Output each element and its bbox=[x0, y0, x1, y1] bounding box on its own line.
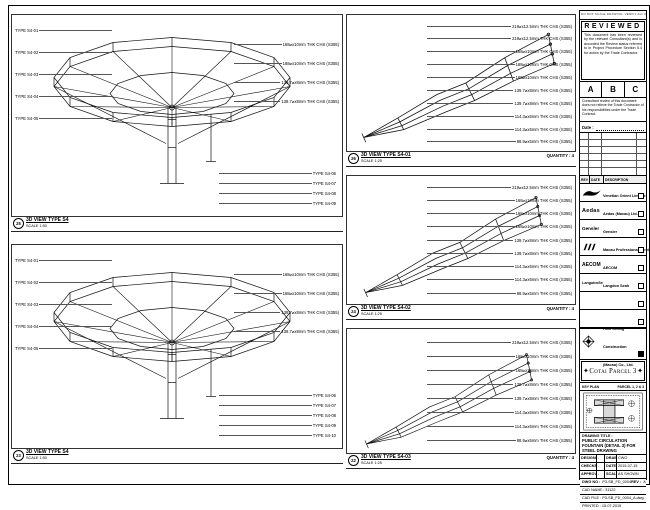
section-label-row: 168⌀x10mm THK CHS (S355) bbox=[233, 60, 339, 66]
annotation-label: 168⌀x10mm THK CHS (S355) bbox=[516, 62, 572, 67]
section-label: 168⌀x10mm THK CHS (S355) bbox=[283, 42, 339, 47]
leader-line bbox=[427, 141, 516, 142]
member-label: TYPE S4-05 bbox=[15, 116, 38, 121]
member-label-row: TYPE S4-03 bbox=[15, 301, 113, 307]
annotation-row: 168⌀x10mm THK CHS (S355) bbox=[426, 62, 572, 68]
section-label-row: 168⌀x10mm THK CHS (S355) bbox=[233, 271, 339, 277]
reviewed-stamp-body: This document has been reviewed by the r… bbox=[582, 32, 644, 56]
consultant-list: Venetian Orient Limited Aedas Aedas (Mac… bbox=[580, 184, 646, 329]
annotation-row: 219⌀x12.5mm THK CHS (S355) bbox=[426, 184, 572, 190]
annotation-label: 114.3⌀x6mm THK CHS (S355) bbox=[515, 114, 572, 119]
keyplan-header: KEY PLAN PARCEL 1, 2 & 3 bbox=[580, 383, 646, 391]
leader-line bbox=[219, 203, 312, 204]
annotation-row: 114.3⌀x6mm THK CHS (S355) bbox=[426, 264, 572, 270]
view-scale: SCALE 1:25 bbox=[361, 159, 411, 163]
cad-name: CAD NAME : 31122 bbox=[582, 487, 615, 494]
annotation-row: 114.3⌀x6mm THK CHS (S355) bbox=[426, 126, 572, 132]
member-label-row: TYPE S4-04 bbox=[15, 323, 113, 329]
annotation-label: 168⌀x10mm THK CHS (S355) bbox=[516, 49, 572, 54]
annotation-label: 219⌀x12.5mm THK CHS (S355) bbox=[512, 24, 572, 29]
member-label: TYPE S4-10 bbox=[313, 433, 336, 438]
section-label: 139.7⌀x8mm THK CHS (S355) bbox=[281, 329, 339, 334]
viewport: TYPE S4-01TYPE S4-02TYPE S4-03TYPE S4-04… bbox=[11, 244, 343, 449]
member-label-row: TYPE S4-09 bbox=[218, 200, 336, 206]
view-caption: 26 3D VIEW TYPE S4-01 SCALE 1:25 QUANTIT… bbox=[346, 152, 576, 167]
section-label-row: 139.7⌀x8mm THK CHS (S355) bbox=[233, 328, 339, 334]
member-label: TYPE S4-03 bbox=[15, 72, 38, 77]
leader-line bbox=[427, 200, 515, 201]
leader-line bbox=[427, 64, 515, 65]
review-grade-b: B bbox=[602, 82, 624, 97]
annotation-row: 219⌀x12.5mm THK CHS (S355) bbox=[426, 23, 572, 29]
keyplan-drawing bbox=[581, 392, 645, 431]
annotation-label: 139.7⌀x8mm THK CHS (S355) bbox=[514, 88, 572, 93]
member-label-row: TYPE S4-10 bbox=[218, 432, 336, 438]
annotation-label: 219⌀x12.5mm THK CHS (S355) bbox=[512, 36, 572, 41]
cad-name-row: CAD NAME : 31122 bbox=[580, 487, 646, 495]
consultant-row-gensler: Gensler Gensler bbox=[580, 220, 646, 238]
consultant-row-empty-1 bbox=[580, 292, 646, 310]
leader-line bbox=[427, 26, 511, 27]
member-label-row: TYPE S4-06 bbox=[218, 170, 336, 176]
leader-line bbox=[39, 30, 112, 31]
leader-line bbox=[39, 348, 112, 349]
annotation-label: 139.7⌀x8mm THK CHS (S355) bbox=[514, 101, 572, 106]
consultant-row-aecom: AECOM AECOM bbox=[580, 256, 646, 274]
section-labels-right: 168⌀x10mm THK CHS (S355)168⌀x10mm THK CH… bbox=[233, 41, 339, 117]
member-label-row: TYPE S4-01 bbox=[15, 27, 113, 33]
member-label-row: TYPE S4-07 bbox=[218, 180, 336, 186]
leader-line bbox=[427, 226, 515, 227]
viewport: TYPE S4-01TYPE S4-02TYPE S4-03TYPE S4-04… bbox=[11, 14, 343, 217]
dwg-no-row: DWG NO : P3-SB_FD_0004 REV : A bbox=[580, 479, 646, 487]
annotation-row: 139.7⌀x8mm THK CHS (S355) bbox=[426, 381, 572, 387]
leader-line bbox=[219, 395, 312, 396]
cad-file-row: CAD FILE : P3-SB_FD_0004_A.dwg bbox=[580, 495, 646, 503]
view-caption: 25 3D VIEW TYPE S4 SCALE 1:50 bbox=[11, 217, 343, 232]
viewport: 219⌀x12.5mm THK CHS (S355)168⌀x10mm THK … bbox=[346, 328, 576, 454]
annotation-stack: 219⌀x12.5mm THK CHS (S355)168⌀x10mm THK … bbox=[426, 184, 572, 296]
leader-line bbox=[39, 74, 112, 75]
leader-line bbox=[427, 342, 511, 343]
member-label: TYPE S4-01 bbox=[15, 28, 38, 33]
member-label-row: TYPE S4-02 bbox=[15, 49, 113, 55]
view-panel-s4-01: 219⌀x12.5mm THK CHS (S355)219⌀x12.5mm TH… bbox=[346, 14, 576, 167]
annotation-row: 88.9⌀x5mm THK CHS (S355) bbox=[426, 437, 572, 443]
section-label: 168⌀x10mm THK CHS (S355) bbox=[283, 61, 339, 66]
member-label-row: TYPE S4-01 bbox=[15, 257, 113, 263]
leader-line bbox=[234, 63, 282, 64]
annotation-label: 168⌀x10mm THK CHS (S355) bbox=[516, 198, 572, 203]
annotation-row: 168⌀x10mm THK CHS (S355) bbox=[426, 211, 572, 217]
rev-label: REV : bbox=[631, 480, 641, 484]
annotation-row: 219⌀x12.5mm THK CHS (S355) bbox=[426, 339, 572, 345]
leader-line bbox=[427, 370, 515, 371]
leader-line bbox=[39, 282, 112, 283]
review-checkbox bbox=[638, 247, 644, 253]
view-caption: 23 3D VIEW TYPE S4 SCALE 1:50 bbox=[11, 449, 343, 464]
leader-line bbox=[39, 118, 112, 119]
review-grade-row: A B C bbox=[580, 82, 646, 98]
annotation-label: 168⌀x10mm THK CHS (S355) bbox=[516, 224, 572, 229]
field-label: DATE bbox=[605, 463, 617, 470]
section-label: 139.7⌀x8mm THK CHS (S355) bbox=[281, 99, 339, 104]
section-label-row: 139.7⌀x8mm THK CHS (S355) bbox=[233, 98, 339, 104]
annotation-label: 88.9⌀x5mm THK CHS (S355) bbox=[517, 139, 572, 144]
field-label: SCALE bbox=[605, 471, 617, 478]
consultant-row-aedas: Aedas Aedas (Macau) Ltd. bbox=[580, 202, 646, 220]
annotation-label: 139.7⌀x8mm THK CHS (S355) bbox=[514, 238, 572, 243]
keyplan-label: KEY PLAN bbox=[582, 385, 599, 389]
leader-line bbox=[427, 412, 514, 413]
quantity-note: QUANTITY : 4 bbox=[547, 455, 574, 460]
date-col-header: DATE bbox=[590, 176, 604, 183]
annotation-row: 114.3⌀x6mm THK CHS (S355) bbox=[426, 409, 572, 415]
annotation-label: 88.9⌀x5mm THK CHS (S355) bbox=[517, 438, 572, 443]
leader-line bbox=[39, 304, 112, 305]
detail-ref-bubble: 24 bbox=[348, 306, 359, 317]
field-value: 2015-07-15 bbox=[617, 463, 646, 470]
middle-view-column: 219⌀x12.5mm THK CHS (S355)219⌀x12.5mm TH… bbox=[346, 14, 576, 481]
drawing-title: PUBLIC CIRCULATION FOUNTAIN (DETAIL 3) F… bbox=[580, 438, 646, 455]
member-label-row: TYPE S4-08 bbox=[218, 190, 336, 196]
annotation-row: 114.3⌀x6mm THK CHS (S355) bbox=[426, 277, 572, 283]
section-label-row: 168⌀x10mm THK CHS (S355) bbox=[233, 290, 339, 296]
review-checkbox bbox=[638, 301, 644, 307]
quantity-note: QUANTITY : 4 bbox=[547, 306, 574, 311]
field-label: APPROVED bbox=[580, 471, 597, 478]
review-checkbox bbox=[638, 211, 644, 217]
leader-line bbox=[427, 398, 513, 399]
member-label-row: TYPE S4-02 bbox=[15, 279, 113, 285]
sheet-note: DO NOT SCALE DRAWING. VERIFY ALL DIMENSI… bbox=[580, 11, 646, 20]
field-label: DESIGNED bbox=[580, 455, 597, 462]
printed-on: PRINTED : 15-07-2015 bbox=[582, 503, 621, 510]
annotation-label: 219⌀x12.5mm THK CHS (S355) bbox=[512, 185, 572, 190]
member-label: TYPE S4-05 bbox=[15, 346, 38, 351]
section-label: 168⌀x10mm THK CHS (S355) bbox=[283, 272, 339, 277]
leader-line bbox=[219, 405, 312, 406]
view-scale: SCALE 1:25 bbox=[361, 312, 411, 316]
leader-line bbox=[234, 82, 280, 83]
meinhardt-logo bbox=[582, 238, 603, 256]
leader-line bbox=[427, 51, 515, 52]
stamp-date-row: Date : bbox=[580, 122, 646, 133]
description-col-header: DESCRIPTION bbox=[604, 176, 646, 183]
member-label: TYPE S4-07 bbox=[313, 403, 336, 408]
member-label: TYPE S4-08 bbox=[313, 191, 336, 196]
contractor-name: Hsin Chong Construction (Macau) Co., Ltd… bbox=[603, 327, 634, 367]
leader-line bbox=[427, 116, 514, 117]
annotation-label: 88.9⌀x5mm THK CHS (S355) bbox=[517, 291, 572, 296]
aecom-logo: AECOM bbox=[582, 262, 603, 268]
drawing-sheet: TYPE S4-01TYPE S4-02TYPE S4-03TYPE S4-04… bbox=[8, 5, 650, 485]
view-panel-s4-02: 219⌀x12.5mm THK CHS (S355)168⌀x10mm THK … bbox=[346, 175, 576, 320]
annotation-row: 139.7⌀x8mm THK CHS (S355) bbox=[426, 87, 572, 93]
dwg-no-label: DWG NO : bbox=[582, 479, 600, 486]
leader-line bbox=[219, 435, 312, 436]
annotation-row: 139.7⌀x8mm THK CHS (S355) bbox=[426, 395, 572, 401]
title-block-column: DO NOT SCALE DRAWING. VERIFY ALL DIMENSI… bbox=[579, 10, 647, 480]
annotation-row: 168⌀x10mm THK CHS (S355) bbox=[426, 353, 572, 359]
annotation-row: 168⌀x10mm THK CHS (S355) bbox=[426, 75, 572, 81]
annotation-row: 168⌀x10mm THK CHS (S355) bbox=[426, 367, 572, 373]
consultant-name: AECOM bbox=[603, 266, 617, 270]
gensler-logo: Gensler bbox=[582, 226, 603, 231]
viewport: 219⌀x12.5mm THK CHS (S355)219⌀x12.5mm TH… bbox=[346, 14, 576, 152]
leader-line bbox=[427, 253, 513, 254]
annotation-label: 168⌀x10mm THK CHS (S355) bbox=[516, 211, 572, 216]
member-label-row: TYPE S4-09 bbox=[218, 422, 336, 428]
member-label-row: TYPE S4-06 bbox=[218, 392, 336, 398]
signoff-grid: DESIGNED - DRAWN CWO CHECKED - DATE 2015… bbox=[580, 455, 646, 479]
leader-line bbox=[219, 193, 312, 194]
leader-line bbox=[219, 415, 312, 416]
left-view-column: TYPE S4-01TYPE S4-02TYPE S4-03TYPE S4-04… bbox=[11, 14, 343, 476]
view-caption: 22 3D VIEW TYPE S4-03 SCALE 1:25 QUANTIT… bbox=[346, 454, 576, 469]
annotation-row: 168⌀x10mm THK CHS (S355) bbox=[426, 224, 572, 230]
field-value: CWO bbox=[617, 455, 646, 462]
annotation-label: 114.3⌀x6mm THK CHS (S355) bbox=[515, 410, 572, 415]
leader-line bbox=[219, 183, 312, 184]
review-grade-c: C bbox=[625, 82, 646, 97]
annotation-label: 114.3⌀x6mm THK CHS (S355) bbox=[515, 264, 572, 269]
quantity-note: QUANTITY : 4 bbox=[547, 153, 574, 158]
review-checkbox bbox=[638, 229, 644, 235]
annotation-label: 139.7⌀x8mm THK CHS (S355) bbox=[514, 396, 572, 401]
leader-line bbox=[427, 384, 513, 385]
stamp-disclaimer: Consultant review of this document does … bbox=[580, 98, 646, 122]
annotation-row: 88.9⌀x5mm THK CHS (S355) bbox=[426, 290, 572, 296]
member-label: TYPE S4-04 bbox=[15, 324, 38, 329]
section-label: 139.7⌀x8mm THK CHS (S355) bbox=[281, 80, 339, 85]
rev-value: A bbox=[643, 479, 646, 486]
consultant-name: Gensler bbox=[603, 230, 617, 234]
section-labels-right: 168⌀x10mm THK CHS (S355)168⌀x10mm THK CH… bbox=[233, 271, 339, 347]
review-checkbox bbox=[638, 283, 644, 289]
member-label: TYPE S4-02 bbox=[15, 50, 38, 55]
member-label: TYPE S4-08 bbox=[313, 413, 336, 418]
leader-line bbox=[234, 274, 282, 275]
aedas-logo: Aedas bbox=[582, 208, 603, 214]
contractor-row: Hsin Chong Construction (Macau) Co., Ltd… bbox=[580, 329, 646, 360]
venetian-sands-logo bbox=[582, 184, 603, 202]
leader-line bbox=[427, 426, 514, 427]
cad-file: CAD FILE : P3-SB_FD_0004_A.dwg bbox=[582, 495, 644, 502]
member-label: TYPE S4-03 bbox=[15, 302, 38, 307]
leader-line bbox=[234, 101, 280, 102]
reviewed-stamp-title: REVIEWED bbox=[582, 22, 644, 32]
member-label-row: TYPE S4-07 bbox=[218, 402, 336, 408]
member-label: TYPE S4-01 bbox=[15, 258, 38, 263]
consultant-name: Langdon Seah bbox=[603, 284, 629, 288]
member-label: TYPE S4-09 bbox=[313, 201, 336, 206]
leader-line bbox=[427, 187, 511, 188]
annotation-label: 168⌀x10mm THK CHS (S355) bbox=[516, 368, 572, 373]
date-label: Date : bbox=[582, 125, 594, 130]
leader-line bbox=[427, 266, 514, 267]
leader-line bbox=[427, 38, 511, 39]
member-type-labels-bottom: TYPE S4-06TYPE S4-07TYPE S4-08TYPE S4-09… bbox=[218, 392, 336, 442]
keyplan-parcel-label: PARCEL 1, 2 & 3 bbox=[618, 385, 644, 389]
section-label-row: 168⌀x10mm THK CHS (S355) bbox=[233, 41, 339, 47]
view-panel-s4-top: TYPE S4-01TYPE S4-02TYPE S4-03TYPE S4-04… bbox=[11, 14, 343, 232]
annotation-row: 139.7⌀x8mm THK CHS (S355) bbox=[426, 250, 572, 256]
member-label: TYPE S4-09 bbox=[313, 423, 336, 428]
section-label: 139.7⌀x8mm THK CHS (S355) bbox=[281, 310, 339, 315]
leader-line bbox=[39, 52, 112, 53]
leader-line bbox=[427, 213, 515, 214]
member-type-labels-left: TYPE S4-01TYPE S4-02TYPE S4-03TYPE S4-04… bbox=[15, 27, 113, 137]
annotation-row: 168⌀x10mm THK CHS (S355) bbox=[426, 197, 572, 203]
leader-line bbox=[427, 293, 516, 294]
member-label-row: TYPE S4-03 bbox=[15, 71, 113, 77]
consultant-row-meinhardt: Macau Professional Services Ltd. bbox=[580, 238, 646, 256]
annotation-label: 114.3⌀x6mm THK CHS (S355) bbox=[515, 127, 572, 132]
annotation-row: 139.7⌀x8mm THK CHS (S355) bbox=[426, 237, 572, 243]
revision-table bbox=[580, 133, 646, 176]
annotation-row: 168⌀x10mm THK CHS (S355) bbox=[426, 49, 572, 55]
leader-line bbox=[234, 293, 282, 294]
date-fill-line bbox=[596, 124, 644, 131]
member-label: TYPE S4-04 bbox=[15, 94, 38, 99]
leader-line bbox=[219, 425, 312, 426]
annotation-label: 168⌀x10mm THK CHS (S355) bbox=[516, 354, 572, 359]
printed-row: PRINTED : 15-07-2015 bbox=[580, 503, 646, 510]
leader-line bbox=[427, 77, 515, 78]
view-panel-s4-03: 219⌀x12.5mm THK CHS (S355)168⌀x10mm THK … bbox=[346, 328, 576, 469]
annotation-row: 139.7⌀x8mm THK CHS (S355) bbox=[426, 100, 572, 106]
member-type-labels-bottom: TYPE S4-06TYPE S4-07TYPE S4-08TYPE S4-09 bbox=[218, 170, 336, 210]
annotation-stack: 219⌀x12.5mm THK CHS (S355)219⌀x12.5mm TH… bbox=[426, 23, 572, 145]
annotation-label: 114.3⌀x6mm THK CHS (S355) bbox=[515, 277, 572, 282]
leader-line bbox=[427, 103, 513, 104]
contractor-checkbox bbox=[638, 351, 644, 357]
annotation-label: 168⌀x10mm THK CHS (S355) bbox=[516, 75, 572, 80]
annotation-row: 114.3⌀x6mm THK CHS (S355) bbox=[426, 113, 572, 119]
member-label-row: TYPE S4-04 bbox=[15, 93, 113, 99]
leader-line bbox=[234, 312, 280, 313]
leader-line bbox=[427, 440, 516, 441]
detail-ref-bubble: 22 bbox=[348, 455, 359, 466]
field-value: - bbox=[597, 471, 605, 478]
field-value: - bbox=[597, 455, 605, 462]
leader-line bbox=[427, 240, 513, 241]
view-scale: SCALE 1:50 bbox=[26, 456, 69, 460]
section-label: 168⌀x10mm THK CHS (S355) bbox=[283, 291, 339, 296]
annotation-row: 114.3⌀x6mm THK CHS (S355) bbox=[426, 423, 572, 429]
member-label-row: TYPE S4-08 bbox=[218, 412, 336, 418]
drawing-title-block: DRAWING TITLE : PUBLIC CIRCULATION FOUNT… bbox=[580, 433, 646, 510]
view-panel-s4-bottom: TYPE S4-01TYPE S4-02TYPE S4-03TYPE S4-04… bbox=[11, 244, 343, 464]
annotation-label: 139.7⌀x8mm THK CHS (S355) bbox=[514, 251, 572, 256]
member-type-labels-left: TYPE S4-01TYPE S4-02TYPE S4-03TYPE S4-04… bbox=[15, 257, 113, 367]
keyplan bbox=[580, 391, 646, 433]
leader-line bbox=[234, 44, 282, 45]
review-grade-a: A bbox=[580, 82, 602, 97]
member-label: TYPE S4-02 bbox=[15, 280, 38, 285]
langdon-seah-logo: LangdonSeah bbox=[582, 281, 603, 285]
annotation-label: 219⌀x12.5mm THK CHS (S355) bbox=[512, 340, 572, 345]
leader-line bbox=[39, 326, 112, 327]
banner-ornament-left: ✦ bbox=[583, 368, 589, 375]
member-label: TYPE S4-06 bbox=[313, 171, 336, 176]
dwg-no: P3-SB_FD_0004 bbox=[602, 479, 631, 486]
consultant-row-langdonseah: LangdonSeah Langdon Seah bbox=[580, 274, 646, 292]
member-label: TYPE S4-06 bbox=[313, 393, 336, 398]
rev-col-header: REV bbox=[580, 176, 590, 183]
leader-line bbox=[234, 331, 280, 332]
consultant-name: Aedas (Macau) Ltd. bbox=[603, 212, 638, 216]
view-caption: 24 3D VIEW TYPE S4-02 SCALE 1:25 QUANTIT… bbox=[346, 305, 576, 320]
annotation-row: 219⌀x12.5mm THK CHS (S355) bbox=[426, 36, 572, 42]
annotation-label: 114.3⌀x6mm THK CHS (S355) bbox=[515, 424, 572, 429]
field-value: - bbox=[597, 463, 605, 470]
reviewed-stamp: REVIEWED This document has been reviewed… bbox=[580, 20, 646, 82]
hsin-chong-logo bbox=[582, 335, 603, 353]
annotation-label: 139.7⌀x8mm THK CHS (S355) bbox=[514, 382, 572, 387]
viewport: 219⌀x12.5mm THK CHS (S355)168⌀x10mm THK … bbox=[346, 175, 576, 305]
field-value: AS SHOWN bbox=[617, 471, 646, 478]
leader-line bbox=[427, 356, 515, 357]
detail-ref-bubble: 26 bbox=[348, 153, 359, 164]
review-checkbox bbox=[638, 265, 644, 271]
detail-ref-bubble: 25 bbox=[13, 218, 24, 229]
view-scale: SCALE 1:50 bbox=[26, 224, 69, 228]
section-label-row: 139.7⌀x8mm THK CHS (S355) bbox=[233, 79, 339, 85]
review-checkbox bbox=[638, 193, 644, 199]
field-label: CHECKED bbox=[580, 463, 597, 470]
leader-line bbox=[219, 173, 312, 174]
member-label-row: TYPE S4-05 bbox=[15, 115, 113, 121]
field-label: DRAWN bbox=[605, 455, 617, 462]
member-label-row: TYPE S4-05 bbox=[15, 345, 113, 351]
detail-ref-bubble: 23 bbox=[13, 450, 24, 461]
annotation-stack: 219⌀x12.5mm THK CHS (S355)168⌀x10mm THK … bbox=[426, 339, 572, 443]
leader-line bbox=[427, 90, 513, 91]
leader-line bbox=[427, 279, 514, 280]
view-scale: SCALE 1:25 bbox=[361, 461, 411, 465]
section-label-row: 139.7⌀x8mm THK CHS (S355) bbox=[233, 309, 339, 315]
leader-line bbox=[39, 260, 112, 261]
annotation-row: 88.9⌀x5mm THK CHS (S355) bbox=[426, 139, 572, 145]
leader-line bbox=[427, 129, 514, 130]
consultant-row-venetian: Venetian Orient Limited bbox=[580, 184, 646, 202]
leader-line bbox=[39, 96, 112, 97]
member-label: TYPE S4-07 bbox=[313, 181, 336, 186]
